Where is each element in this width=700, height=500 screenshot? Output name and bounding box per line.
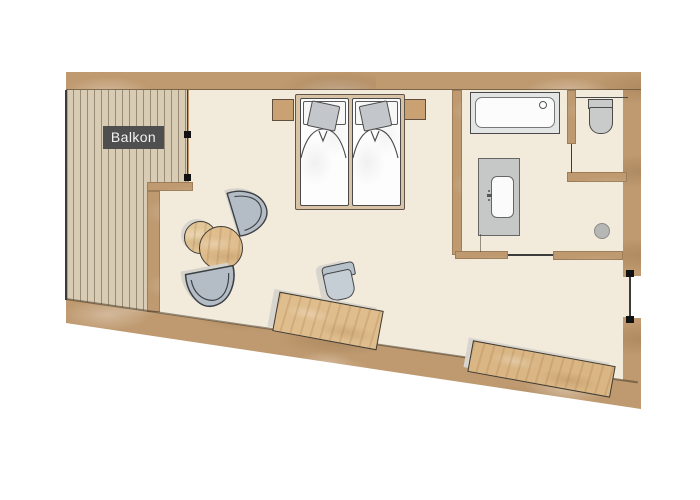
faucet-dot-2 <box>488 199 490 201</box>
bathroom-bottom-wall-left <box>455 251 508 259</box>
balcony-label: Balkon <box>103 126 164 149</box>
faucet-icon <box>487 194 492 197</box>
faucet-dot-1 <box>488 190 490 192</box>
wc-wall-vertical <box>567 90 576 144</box>
bathroom-wall <box>452 90 462 255</box>
balcony-door-jamb-top <box>184 131 191 138</box>
balcony-wall-vertical <box>147 191 160 312</box>
lounge-chair-lower <box>182 262 240 311</box>
balcony-door-jamb-bottom <box>184 174 191 181</box>
bathroom-sliding-door <box>508 254 553 256</box>
shower-drain <box>594 223 610 239</box>
bathtub-drain <box>539 101 547 109</box>
top-wall-edge <box>66 89 641 90</box>
nightstand-left <box>272 99 294 121</box>
nightstand-right <box>404 99 426 120</box>
floor-plan: Balkon <box>0 0 700 500</box>
vanity-wall-line <box>480 234 481 252</box>
wc-glass-partition <box>571 144 572 173</box>
entrance-door-jamb-top <box>626 270 634 277</box>
entrance-door <box>629 276 631 317</box>
wc-wall-horizontal <box>567 172 627 182</box>
toilet-bowl <box>589 107 613 134</box>
vanity-sink <box>491 176 514 218</box>
balcony-wall-horizontal <box>147 182 193 191</box>
entrance-door-jamb-bottom <box>626 316 634 323</box>
balcony-rail-line <box>65 90 67 300</box>
entrance-opening-outside <box>631 276 643 318</box>
bathroom-bottom-wall-right <box>553 251 623 260</box>
